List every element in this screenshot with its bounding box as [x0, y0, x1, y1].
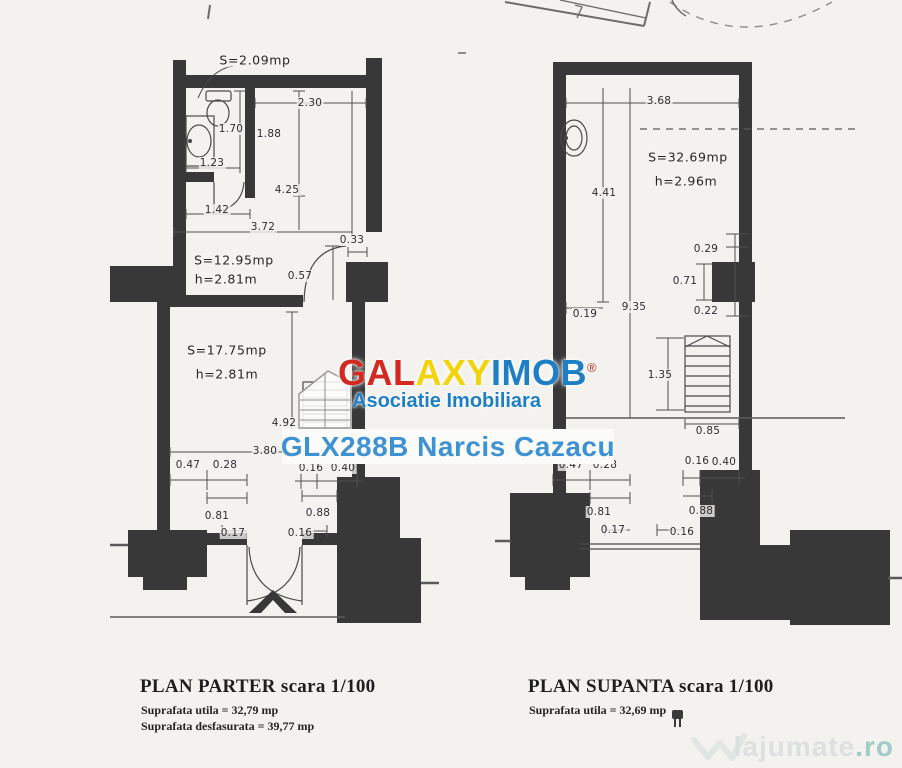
watermark-brand-segment: GAL [338, 352, 416, 393]
parter-dimension-label: 0.16 [287, 527, 314, 539]
supanta-dimension-label: 0.16 [669, 526, 696, 538]
supanta-dimension-label: 0.19 [572, 308, 599, 320]
parter-room-label: S=17.75mp [187, 343, 267, 358]
parter-dimension-label: 0.28 [212, 459, 239, 471]
parter-dimension-label: 0.33 [339, 234, 366, 246]
watermark-brand-segment: IMOB [491, 352, 587, 393]
lajumate-name: lajumate [734, 731, 856, 763]
parter-dimension-label: 0.17 [220, 527, 247, 539]
supanta-dimension-label: 0.85 [695, 425, 722, 437]
supanta-dimension-label: 0.16 [684, 455, 711, 467]
supanta-dimension-label: 0.81 [586, 506, 613, 518]
parter-dimension-label: 1.42 [204, 204, 231, 216]
parter-useful-area: Suprafata utila = 32,79 mp [141, 702, 314, 718]
parter-dimension-label: 4.92 [271, 417, 298, 429]
parter-dimension-label: 0.57 [287, 270, 314, 282]
parter-dimension-label: 0.47 [175, 459, 202, 471]
watermark-brand: GALAXYIMOB® [338, 352, 597, 394]
parter-total-area: Suprafata desfasurata = 39,77 mp [141, 718, 314, 734]
supanta-dimension-label: 0.22 [693, 305, 720, 317]
parter-room-label: h=2.81m [195, 272, 258, 287]
parter-dimension-label: 3.80 [252, 445, 279, 457]
watermark-listing-band: GLX288B Narcis Cazacu [282, 429, 614, 464]
scanned-floor-plan-page: { "page": { "background": "#f3f2ef", "in… [0, 0, 902, 768]
supanta-dimension-label: 0.29 [693, 243, 720, 255]
parter-dimension-label: 3.72 [250, 221, 277, 233]
registered-mark: ® [587, 360, 597, 375]
supanta-dimension-label: 3.68 [646, 95, 673, 107]
watermark-brand-segment: AXY [416, 352, 492, 393]
parter-dimension-label: 1.88 [256, 128, 283, 140]
parter-dimension-label: 1.23 [199, 157, 226, 169]
supanta-useful-area: Suprafata utila = 32,69 mp [529, 702, 666, 718]
parter-room-label: S=12.95mp [194, 253, 274, 268]
lajumate-watermark: lajumate.ro [734, 731, 894, 763]
supanta-dimension-label: 0.71 [672, 275, 699, 287]
supanta-room-label: h=2.96m [655, 174, 718, 189]
supanta-dimension-label: 9.35 [621, 301, 648, 313]
watermark-subtitle: Asociatie Imobiliara [352, 390, 541, 413]
plan-parter-title: PLAN PARTER scara 1/100 [140, 676, 375, 698]
parter-dimension-label: 2.30 [297, 97, 324, 109]
plan-supanta-footer: Suprafata utila = 32,69 mp [529, 702, 666, 718]
supanta-dimension-label: 1.35 [647, 369, 674, 381]
plan-supanta-title: PLAN SUPANTA scara 1/100 [528, 676, 774, 698]
parter-dimension-label: 4.25 [274, 184, 301, 196]
plan-parter-footer: Suprafata utila = 32,79 mp Suprafata des… [141, 702, 314, 734]
supanta-dimension-label: 4.41 [591, 187, 618, 199]
supanta-dimension-label: 0.88 [688, 505, 715, 517]
parter-dimension-label: 1.70 [218, 123, 245, 135]
supanta-room-label: S=32.69mp [648, 150, 728, 165]
parter-dimension-label: 0.81 [204, 510, 231, 522]
supanta-dimension-label: 0.17 [600, 524, 627, 536]
lajumate-tld: .ro [855, 731, 894, 763]
parter-room-label: S=2.09mp [219, 53, 290, 68]
supanta-dimension-label: 0.40 [711, 456, 738, 468]
watermark-listing-text: GLX288B Narcis Cazacu [281, 431, 615, 463]
parter-room-label: h=2.81m [196, 367, 259, 382]
parter-dimension-label: 0.88 [305, 507, 332, 519]
